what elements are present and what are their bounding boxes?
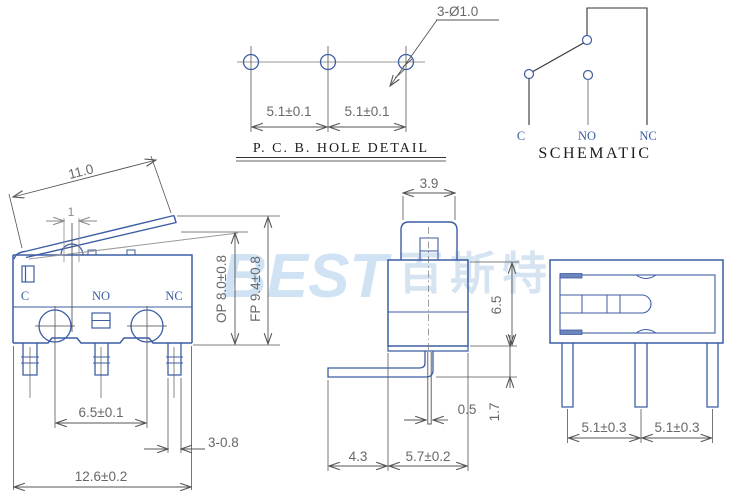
dim-plunger-width: 1: [68, 205, 75, 219]
dim-fp-height: FP 9.4±0.8: [248, 256, 263, 322]
dim-lever-drop: 1.7: [487, 403, 502, 422]
dim-pin-thickness: 0.5: [458, 402, 477, 417]
schematic-contact-common-arm: [583, 36, 592, 45]
dim-op-height: OP 8.0±0.8: [214, 255, 229, 323]
dim-pcb-pitch-right: 5.1±0.1: [345, 104, 390, 119]
front-terminal-no: NO: [92, 289, 110, 303]
lever-dim-ext-right: [151, 156, 171, 213]
pcb-detail-title: P. C. B. HOLE DETAIL: [253, 141, 429, 156]
dim-body-width: 12.6±0.2: [75, 469, 127, 484]
body-corner-window: [22, 266, 34, 282]
dim-hole-span: 6.5±0.1: [79, 405, 124, 420]
pcb-hole-detail-view: 5.1±0.1 5.1±0.1 3-Ø1.0 P. C. B. HOLE DET…: [236, 4, 499, 161]
bottom-tab-top: [560, 274, 582, 279]
bottom-inner-outline: [560, 275, 715, 333]
dim-pcb-pitch-left: 5.1±0.1: [267, 104, 312, 119]
front-pins: [21, 343, 183, 398]
side-view: 3.9 0.5 4.3 5.7±0.2 1.7 6.5: [328, 176, 519, 471]
schematic-terminal-no: NO: [578, 129, 596, 143]
bottom-tab-bottom: [560, 330, 582, 335]
schematic-contact-c: [525, 70, 534, 79]
lever-arm: [14, 216, 176, 260]
microswitch-drawing: BEST 百斯特 5.1±0.1 5.1±0.1 3-Ø1.0 P. C. B.…: [0, 0, 743, 503]
dim-lever-length: 11.0: [67, 161, 95, 182]
dim-pin-width: 3-0.8: [208, 435, 239, 450]
dim-bottom-pitch-left: 5.1±0.3: [582, 420, 627, 435]
schematic-contact-no: [584, 71, 593, 80]
front-view: 11.0 1 C NO NC OP 8.0±0.8 FP 9.4±0.8 6.5…: [9, 156, 280, 490]
pin-no: [95, 343, 108, 375]
bottom-view: 5.1±0.3 5.1±0.3: [550, 260, 723, 443]
bottom-pin-2: [635, 343, 647, 407]
lever-dim-ext-left: [9, 194, 22, 248]
schematic-terminal-c: C: [517, 129, 525, 143]
bottom-pin-3: [707, 343, 718, 407]
schematic-wire-top: [587, 8, 647, 125]
dim-body-depth: 5.7±0.2: [406, 449, 451, 464]
schematic-title: SCHEMATIC: [538, 145, 651, 162]
bottom-pin-1: [562, 343, 573, 407]
leader-tick-2: [403, 59, 412, 67]
technical-drawing-page: BEST 百斯特 5.1±0.1 5.1±0.1 3-Ø1.0 P. C. B.…: [0, 0, 743, 503]
leader-tick-1: [395, 70, 404, 78]
side-pin: [428, 352, 431, 424]
schematic-switch-arm: [533, 43, 584, 72]
dim-lever-width: 3.9: [420, 176, 439, 191]
front-terminal-c: C: [21, 289, 29, 303]
schematic-view: C NO NC SCHEMATIC: [517, 8, 657, 162]
dim-hole-size: 3-Ø1.0: [437, 4, 478, 19]
dim-body-height: 6.5: [489, 296, 504, 315]
pin-nc: [168, 343, 181, 375]
dim-bottom-pitch-right: 5.1±0.3: [655, 420, 700, 435]
side-lever-flange: [328, 351, 433, 377]
schematic-terminal-nc: NC: [639, 129, 656, 143]
bottom-lever-slot: [560, 295, 651, 313]
front-terminal-nc: NC: [165, 289, 182, 303]
dim-lever-overhang: 4.3: [349, 449, 368, 464]
watermark-cn-text: 百斯特: [398, 248, 554, 299]
